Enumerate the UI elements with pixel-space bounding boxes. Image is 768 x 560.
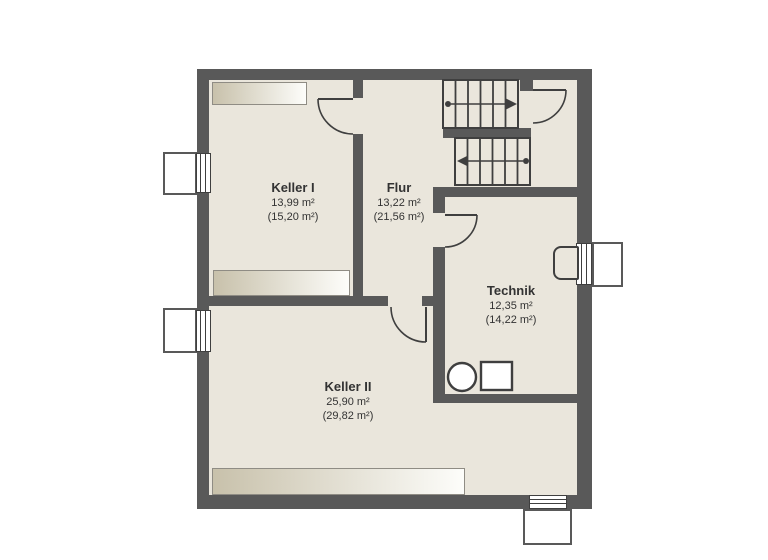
stair-direction-start-dot: [445, 101, 451, 107]
stair-direction-arrow: [457, 156, 468, 167]
room-label-technik: Technik 12,35 m² (14,22 m²): [441, 283, 581, 327]
room-area-net: 12,35 m²: [441, 299, 581, 313]
staircase-lower-flight-icon: [455, 138, 530, 185]
door-keller1-icon: [318, 99, 353, 134]
staircase-upper-flight-icon: [443, 80, 518, 128]
room-area-gross: (21,56 m²): [329, 210, 469, 224]
floor-plan: Keller I 13,99 m² (15,20 m²) Flur 13,22 …: [0, 0, 768, 560]
boiler-tank-icon: [448, 363, 476, 391]
room-area-gross: (14,22 m²): [441, 313, 581, 327]
door-staircase-icon: [533, 90, 566, 123]
floorplan-symbols-layer: [0, 0, 768, 560]
room-label-keller2: Keller II 25,90 m² (29,82 m²): [278, 379, 418, 423]
stair-direction-arrow: [506, 99, 517, 110]
room-label-flur: Flur 13,22 m² (21,56 m²): [329, 180, 469, 224]
room-name: Technik: [441, 283, 581, 299]
room-name: Flur: [329, 180, 469, 196]
room-area-net: 13,22 m²: [329, 196, 469, 210]
stair-direction-start-dot: [523, 158, 529, 164]
room-area-net: 25,90 m²: [278, 395, 418, 409]
equipment-box-icon: [481, 362, 512, 390]
door-keller2-icon: [391, 307, 426, 342]
room-area-gross: (29,82 m²): [278, 409, 418, 423]
room-name: Keller II: [278, 379, 418, 395]
